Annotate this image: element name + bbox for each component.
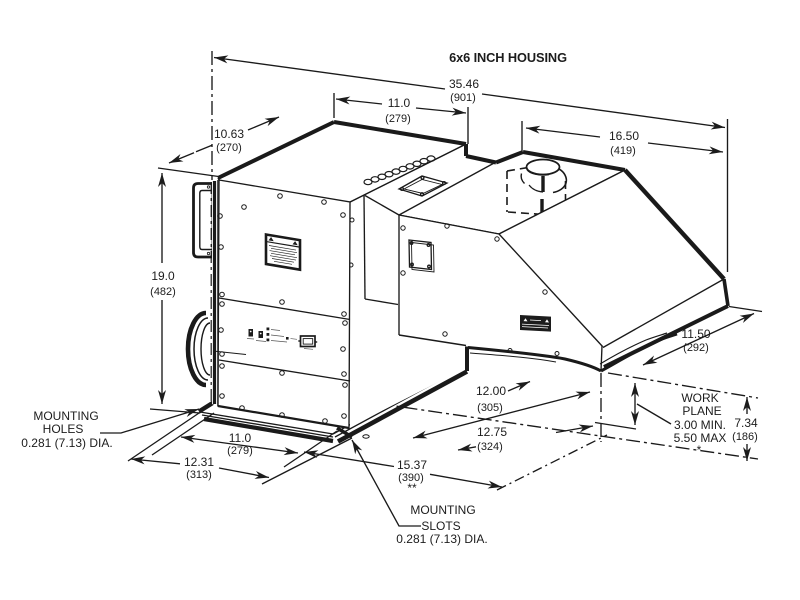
svg-text:12.31: 12.31 (184, 455, 214, 469)
svg-text:(186): (186) (732, 431, 758, 443)
svg-text:MOUNTING: MOUNTING (410, 503, 475, 517)
svg-text:12.00: 12.00 (476, 384, 506, 398)
svg-text:12.75: 12.75 (477, 425, 507, 439)
svg-text:HOLES: HOLES (43, 422, 84, 436)
svg-text:(901): (901) (450, 92, 476, 104)
svg-text:6x6 INCH HOUSING: 6x6 INCH HOUSING (449, 50, 567, 65)
svg-text:7.34: 7.34 (734, 416, 758, 430)
svg-text:WORK: WORK (681, 391, 718, 405)
svg-text:MOUNTING: MOUNTING (33, 409, 98, 423)
svg-text:11.0: 11.0 (388, 96, 411, 110)
svg-text:(324): (324) (477, 441, 503, 453)
svg-text:16.50: 16.50 (609, 129, 639, 143)
svg-text:15.37: 15.37 (397, 458, 427, 472)
svg-text:(482): (482) (150, 286, 176, 298)
svg-text:PLANE: PLANE (682, 404, 721, 418)
svg-text:11.50: 11.50 (681, 327, 710, 341)
svg-text:(279): (279) (227, 445, 253, 457)
svg-text:19.0: 19.0 (151, 269, 175, 283)
svg-text:(313): (313) (186, 469, 212, 481)
svg-text:(292): (292) (683, 342, 709, 354)
svg-text:35.46: 35.46 (449, 77, 479, 91)
svg-text:**: ** (407, 481, 417, 495)
svg-text:0.281 (7.13) DIA.: 0.281 (7.13) DIA. (21, 436, 112, 450)
svg-text:0.281 (7.13) DIA.: 0.281 (7.13) DIA. (396, 532, 487, 546)
svg-text:11.0: 11.0 (229, 431, 252, 445)
svg-text:(279): (279) (385, 113, 411, 125)
svg-text:3.00 MIN.: 3.00 MIN. (674, 418, 726, 432)
svg-text:SLOTS: SLOTS (421, 519, 460, 533)
svg-text:*: * (697, 443, 702, 457)
svg-text:10.63: 10.63 (214, 127, 244, 141)
svg-text:(270): (270) (216, 142, 242, 154)
svg-text:(305): (305) (477, 402, 503, 414)
svg-text:(419): (419) (610, 145, 636, 157)
